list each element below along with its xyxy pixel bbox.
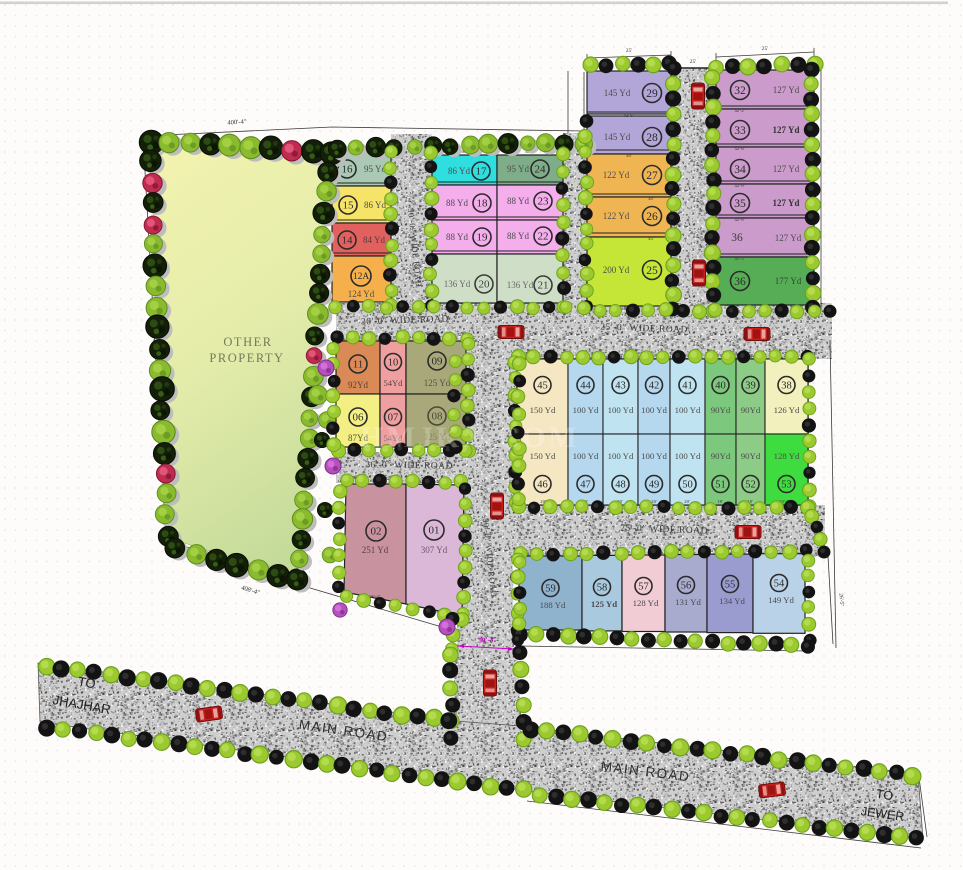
svg-text:PROPERTY: PROPERTY [209,351,284,365]
svg-text:128 Yd: 128 Yd [774,451,800,461]
svg-text:127 Yd: 127 Yd [773,198,800,208]
svg-text:18: 18 [477,198,489,210]
svg-text:88 Yd: 88 Yd [446,198,468,208]
svg-text:145 Yd: 145 Yd [604,132,631,142]
svg-text:90Yd: 90Yd [741,405,761,415]
svg-text:136 Yd: 136 Yd [507,280,534,290]
svg-text:26′-0″ WIDE ROAD: 26′-0″ WIDE ROAD [365,460,453,472]
svg-text:40': 40' [648,196,654,201]
svg-text:125 Yd: 125 Yd [591,599,617,609]
svg-text:26: 26 [646,211,658,223]
svg-text:307 Yd: 307 Yd [421,545,448,555]
svg-text:16: 16 [342,164,354,176]
svg-text:128 Yd: 128 Yd [633,598,659,608]
svg-text:32: 32 [734,85,746,97]
svg-text:10: 10 [388,358,399,369]
svg-text:33: 33 [734,125,746,137]
svg-text:17: 17 [476,166,488,178]
svg-text:251 Yd: 251 Yd [362,545,389,555]
svg-text:18': 18' [717,499,723,504]
svg-text:49: 49 [649,480,660,491]
svg-text:42'-8": 42'-8" [734,146,745,151]
svg-text:45': 45' [648,236,654,241]
svg-text:HMJKX.COM: HMJKX.COM [360,421,579,454]
svg-text:46: 46 [537,480,548,491]
svg-text:100 Yd: 100 Yd [675,451,701,461]
svg-text:47: 47 [580,480,591,491]
svg-text:131 Yd: 131 Yd [675,597,701,607]
svg-text:134 Yd: 134 Yd [719,596,745,606]
svg-text:54: 54 [774,579,785,590]
svg-text:25': 25' [690,59,697,65]
svg-text:58: 58 [597,583,608,594]
svg-text:122 Yd: 122 Yd [603,211,630,221]
svg-text:125 Yd: 125 Yd [424,378,451,388]
svg-text:50'-3": 50'-3" [478,635,497,644]
svg-text:50: 50 [682,480,693,491]
svg-text:27: 27 [646,170,658,182]
svg-text:28: 28 [646,132,658,144]
svg-text:127 Yd: 127 Yd [775,233,802,243]
svg-text:56: 56 [681,581,692,592]
svg-text:126 Yd: 126 Yd [774,405,800,415]
svg-text:11: 11 [353,359,364,371]
svg-text:45: 45 [537,381,548,392]
svg-text:100 Yd: 100 Yd [608,451,634,461]
svg-text:39: 39 [745,381,756,392]
svg-text:15: 15 [343,200,355,212]
svg-text:84 Yd: 84 Yd [363,235,385,245]
svg-text:25': 25' [626,48,633,54]
svg-text:100 Yd: 100 Yd [573,405,599,415]
svg-text:09: 09 [432,356,444,368]
svg-text:90Yd: 90Yd [741,451,761,461]
svg-text:22: 22 [538,231,549,243]
svg-text:145 Yd: 145 Yd [604,88,631,98]
svg-text:25: 25 [646,265,658,277]
svg-text:24: 24 [535,164,547,176]
svg-text:43: 43 [615,381,626,392]
svg-text:51: 51 [715,480,726,491]
svg-text:02: 02 [371,526,382,538]
svg-text:100 Yd: 100 Yd [641,451,667,461]
svg-text:19: 19 [477,232,489,244]
svg-text:45'-5": 45'-5" [734,256,745,261]
svg-text:177 Yd: 177 Yd [775,276,802,286]
svg-text:127 Yd: 127 Yd [773,164,800,174]
svg-text:188 Yd: 188 Yd [540,600,566,610]
svg-text:21: 21 [538,280,549,292]
svg-text:88 Yd: 88 Yd [446,232,468,242]
svg-text:41: 41 [682,381,693,392]
svg-text:12A: 12A [353,272,370,282]
svg-text:20': 20' [684,499,690,504]
svg-text:136 Yd: 136 Yd [444,279,471,289]
svg-text:40': 40' [626,153,632,158]
svg-text:42: 42 [649,381,660,392]
svg-text:92Yd: 92Yd [348,380,368,390]
svg-text:36: 36 [734,276,746,288]
svg-text:95 Yd: 95 Yd [364,164,386,174]
svg-text:53: 53 [781,480,792,491]
svg-text:42'-6": 42'-6" [623,113,634,118]
svg-text:38: 38 [781,381,792,392]
svg-text:150 Yd: 150 Yd [530,405,556,415]
svg-text:122 Yd: 122 Yd [603,170,630,180]
svg-text:26'-5": 26'-5" [838,593,845,607]
svg-text:20: 20 [479,279,491,291]
svg-text:57: 57 [638,582,649,593]
svg-text:127 Yd: 127 Yd [773,85,800,95]
svg-text:59: 59 [545,584,556,595]
svg-text:TO: TO [77,674,97,692]
svg-text:35: 35 [734,198,746,210]
svg-text:42'-2": 42'-2" [734,108,745,113]
svg-text:42'-8": 42'-8" [734,217,745,222]
svg-text:44: 44 [580,381,591,392]
svg-text:01: 01 [429,525,440,537]
svg-text:86 Yd: 86 Yd [364,200,386,210]
svg-text:100 Yd: 100 Yd [608,405,634,415]
svg-text:54Yd: 54Yd [384,378,404,388]
svg-text:88 Yd: 88 Yd [507,231,529,241]
svg-text:149 Yd: 149 Yd [768,595,794,605]
svg-text:40: 40 [715,381,726,392]
svg-text:14: 14 [342,235,354,247]
svg-text:90Yd: 90Yd [711,451,731,461]
svg-text:42'-8": 42'-8" [734,183,745,188]
svg-text:86 Yd: 86 Yd [448,166,470,176]
svg-text:88 Yd: 88 Yd [507,196,529,206]
svg-text:100 Yd: 100 Yd [675,405,701,415]
svg-text:90Yd: 90Yd [711,405,731,415]
svg-text:29: 29 [646,88,658,100]
svg-text:127 Yd: 127 Yd [773,125,800,135]
svg-text:124 Yd: 124 Yd [348,289,375,299]
svg-text:23: 23 [538,196,550,208]
svg-text:100 Yd: 100 Yd [641,405,667,415]
svg-text:400'-4": 400'-4" [227,118,247,126]
svg-text:36: 36 [731,232,743,244]
svg-text:18': 18' [390,335,396,340]
svg-text:OTHER: OTHER [223,335,272,349]
svg-text:34: 34 [734,164,746,176]
svg-text:48: 48 [615,480,626,491]
svg-text:200 Yd: 200 Yd [603,265,630,275]
svg-text:TO: TO [875,787,894,803]
svg-text:55: 55 [725,580,736,591]
svg-text:95 Yd: 95 Yd [507,164,529,174]
svg-text:25': 25' [762,46,769,52]
svg-text:52: 52 [745,480,756,491]
